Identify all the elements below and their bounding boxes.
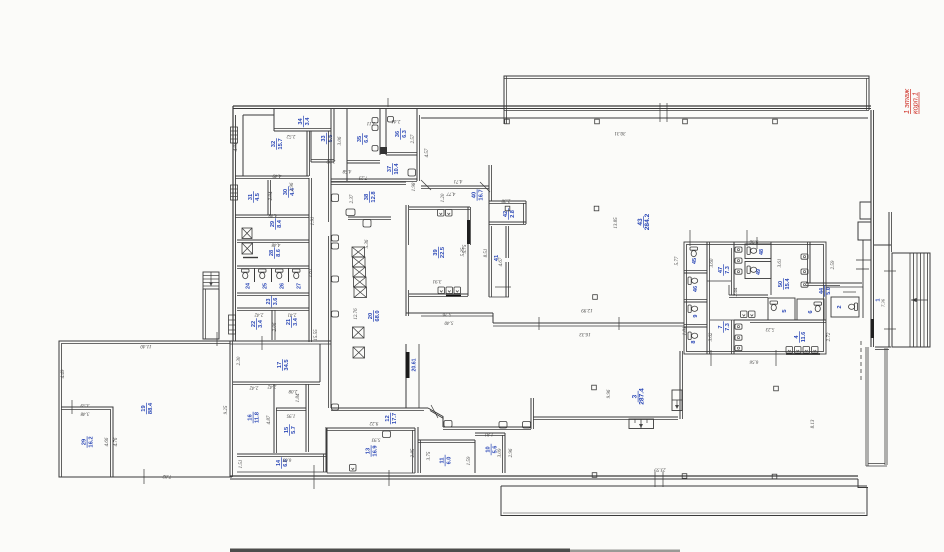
svg-text:2.59: 2.59 <box>831 260 836 269</box>
svg-text:7.3: 7.3 <box>725 323 731 331</box>
svg-text:8.4: 8.4 <box>277 219 283 228</box>
svg-text:27: 27 <box>297 283 303 289</box>
svg-text:36: 36 <box>395 131 401 137</box>
svg-text:8.13: 8.13 <box>811 419 816 428</box>
svg-text:16.7: 16.7 <box>479 189 485 200</box>
svg-text:6.0: 6.0 <box>447 457 453 465</box>
svg-text:7.36: 7.36 <box>881 298 886 307</box>
svg-text:2.8: 2.8 <box>510 210 516 218</box>
svg-text:20.61: 20.61 <box>412 358 418 371</box>
svg-text:13.85: 13.85 <box>614 217 619 229</box>
svg-text:22.5: 22.5 <box>440 246 446 258</box>
svg-text:5.77: 5.77 <box>675 256 680 265</box>
svg-text:15.55: 15.55 <box>314 329 319 341</box>
svg-text:47: 47 <box>718 267 724 273</box>
svg-text:6: 6 <box>808 310 814 314</box>
svg-text:7: 7 <box>718 325 724 328</box>
svg-text:4.66: 4.66 <box>105 437 110 446</box>
svg-text:2.37: 2.37 <box>350 194 355 203</box>
svg-text:5.35: 5.35 <box>461 247 466 256</box>
svg-text:29: 29 <box>81 438 87 445</box>
svg-text:29: 29 <box>270 221 276 227</box>
svg-text:2.42: 2.42 <box>254 312 263 317</box>
svg-text:30: 30 <box>283 189 289 195</box>
svg-text:11: 11 <box>439 458 445 464</box>
svg-text:6.3: 6.3 <box>402 130 408 138</box>
svg-text:2.38: 2.38 <box>501 198 510 203</box>
svg-text:50: 50 <box>778 281 784 287</box>
svg-text:19: 19 <box>141 405 147 412</box>
svg-text:3.91: 3.91 <box>433 278 442 283</box>
svg-text:2.11: 2.11 <box>367 120 375 125</box>
svg-text:2.44: 2.44 <box>734 287 739 296</box>
svg-text:1.84: 1.84 <box>296 393 301 402</box>
svg-text:2.85: 2.85 <box>411 448 416 457</box>
svg-text:9.22: 9.22 <box>369 420 378 425</box>
svg-text:5.7: 5.7 <box>291 426 297 434</box>
svg-text:31: 31 <box>248 194 254 200</box>
svg-text:9.96: 9.96 <box>607 389 612 398</box>
svg-text:4.87: 4.87 <box>267 415 272 424</box>
svg-text:6.03: 6.03 <box>282 457 291 462</box>
svg-text:1.91: 1.91 <box>311 217 316 226</box>
svg-text:4.67: 4.67 <box>499 257 504 266</box>
svg-text:2.52: 2.52 <box>286 133 295 138</box>
svg-text:15.4: 15.4 <box>785 278 791 290</box>
svg-text:3.6: 3.6 <box>273 298 279 306</box>
svg-text:15.7: 15.7 <box>278 138 284 149</box>
svg-text:40: 40 <box>471 192 477 198</box>
svg-text:2: 2 <box>837 305 843 308</box>
svg-text:287.4: 287.4 <box>639 388 646 405</box>
svg-text:1.98: 1.98 <box>412 182 417 191</box>
svg-text:11.40: 11.40 <box>140 343 151 348</box>
svg-text:2.96: 2.96 <box>509 448 514 457</box>
svg-text:11.6: 11.6 <box>801 332 807 343</box>
svg-text:7.3: 7.3 <box>725 266 731 274</box>
svg-text:2.72: 2.72 <box>827 332 832 341</box>
svg-text:8.6: 8.6 <box>276 249 282 257</box>
svg-text:4.58: 4.58 <box>342 168 351 173</box>
svg-text:9.25: 9.25 <box>224 405 229 414</box>
svg-text:2.41: 2.41 <box>288 312 297 317</box>
svg-text:4.71: 4.71 <box>454 178 463 183</box>
svg-text:2.06: 2.06 <box>273 322 278 331</box>
svg-text:26: 26 <box>280 283 286 289</box>
svg-text:3.75: 3.75 <box>427 451 432 460</box>
svg-text:23.59: 23.59 <box>654 467 666 472</box>
svg-text:17: 17 <box>277 362 283 368</box>
svg-text:5.0: 5.0 <box>826 287 832 295</box>
svg-text:1.51: 1.51 <box>239 460 244 469</box>
svg-text:10.4: 10.4 <box>394 163 400 175</box>
svg-text:4: 4 <box>794 335 800 339</box>
svg-text:4.5: 4.5 <box>255 193 261 201</box>
svg-text:5.36: 5.36 <box>365 239 370 248</box>
svg-text:2.42: 2.42 <box>249 385 258 390</box>
svg-text:68.0: 68.0 <box>375 310 381 321</box>
svg-text:3.4: 3.4 <box>305 117 311 126</box>
svg-text:12: 12 <box>385 415 391 421</box>
svg-text:3.4: 3.4 <box>258 319 264 328</box>
svg-text:5.40: 5.40 <box>444 320 453 325</box>
svg-text:12.8: 12.8 <box>371 191 377 203</box>
svg-text:20: 20 <box>368 313 374 319</box>
svg-text:3.06: 3.06 <box>338 136 343 145</box>
svg-text:5: 5 <box>782 309 788 313</box>
svg-text:30.31: 30.31 <box>614 130 625 135</box>
svg-text:8.51: 8.51 <box>484 249 489 258</box>
svg-text:4.49: 4.49 <box>272 173 281 178</box>
svg-text:6.4: 6.4 <box>364 134 370 143</box>
svg-text:5.93: 5.93 <box>371 437 380 442</box>
svg-text:32: 32 <box>271 141 277 147</box>
svg-text:7.82: 7.82 <box>162 473 171 478</box>
svg-text:11.8: 11.8 <box>255 411 261 423</box>
svg-text:22: 22 <box>251 321 257 327</box>
svg-text:4.77: 4.77 <box>446 191 455 196</box>
svg-text:14: 14 <box>276 460 282 466</box>
svg-text:17.7: 17.7 <box>392 413 398 424</box>
svg-text:23: 23 <box>266 299 272 305</box>
svg-text:24: 24 <box>246 283 252 289</box>
svg-text:2.30: 2.30 <box>237 356 242 365</box>
svg-text:4.48: 4.48 <box>268 212 277 217</box>
svg-text:1.20: 1.20 <box>441 193 446 202</box>
svg-text:1.61: 1.61 <box>309 269 314 278</box>
svg-text:3.4: 3.4 <box>293 317 299 326</box>
svg-text:4.48: 4.48 <box>271 242 280 247</box>
svg-text:10: 10 <box>485 446 491 452</box>
svg-text:42: 42 <box>503 211 509 217</box>
svg-text:46: 46 <box>693 286 699 292</box>
svg-text:4.04: 4.04 <box>234 142 239 151</box>
svg-text:2.42: 2.42 <box>267 384 276 389</box>
svg-text:4.49: 4.49 <box>61 369 66 378</box>
svg-text:44: 44 <box>819 288 825 294</box>
svg-text:49: 49 <box>756 269 762 275</box>
svg-text:5.26: 5.26 <box>442 311 451 316</box>
svg-text:34.5: 34.5 <box>284 359 290 371</box>
svg-text:4.57: 4.57 <box>425 148 430 157</box>
svg-text:21: 21 <box>286 319 292 325</box>
svg-text:6.56: 6.56 <box>749 359 758 364</box>
svg-text:8: 8 <box>691 340 697 343</box>
svg-text:39: 39 <box>433 249 439 256</box>
svg-text:284.2: 284.2 <box>644 213 651 230</box>
svg-text:3: 3 <box>631 394 638 398</box>
svg-text:48: 48 <box>759 249 765 255</box>
svg-text:45: 45 <box>692 258 698 264</box>
svg-text:37: 37 <box>387 166 393 172</box>
svg-text:7.23: 7.23 <box>358 175 367 180</box>
svg-text:3.48: 3.48 <box>80 411 89 416</box>
svg-text:88.4: 88.4 <box>148 402 154 414</box>
svg-text:1.59: 1.59 <box>467 456 472 465</box>
svg-text:16.9: 16.9 <box>373 445 379 457</box>
svg-text:38: 38 <box>364 193 370 200</box>
svg-text:15: 15 <box>284 427 290 433</box>
svg-text:1.95: 1.95 <box>286 413 295 418</box>
svg-text:корп.1: корп.1 <box>911 92 920 114</box>
svg-text:9: 9 <box>693 314 699 317</box>
svg-text:43: 43 <box>637 218 644 226</box>
svg-text:3.09: 3.09 <box>498 448 503 457</box>
svg-text:28: 28 <box>269 250 275 256</box>
svg-text:33: 33 <box>321 135 327 141</box>
svg-text:2.39: 2.39 <box>326 158 335 163</box>
svg-text:3.61: 3.61 <box>778 259 783 268</box>
svg-text:12.99: 12.99 <box>581 307 593 312</box>
svg-text:2.44: 2.44 <box>391 118 400 123</box>
svg-text:16.33: 16.33 <box>579 331 591 336</box>
svg-text:3.59: 3.59 <box>80 402 89 407</box>
svg-text:5.23: 5.23 <box>765 326 774 331</box>
svg-text:25: 25 <box>263 283 269 289</box>
svg-text:12.76: 12.76 <box>354 308 359 320</box>
svg-text:4.76: 4.76 <box>114 437 119 446</box>
svg-text:16.2: 16.2 <box>89 436 95 447</box>
svg-text:13: 13 <box>365 447 371 454</box>
svg-text:2.04: 2.04 <box>269 191 274 200</box>
svg-text:2.96: 2.96 <box>290 182 295 191</box>
svg-text:1.81: 1.81 <box>683 327 688 336</box>
svg-text:3.60: 3.60 <box>710 258 715 267</box>
svg-text:2.57: 2.57 <box>411 134 416 143</box>
svg-text:3.62: 3.62 <box>709 332 714 341</box>
svg-text:1.81: 1.81 <box>485 431 494 436</box>
svg-text:16: 16 <box>247 414 253 421</box>
svg-text:35: 35 <box>357 136 363 142</box>
svg-text:34: 34 <box>298 118 304 125</box>
svg-text:2.08: 2.08 <box>288 388 297 393</box>
